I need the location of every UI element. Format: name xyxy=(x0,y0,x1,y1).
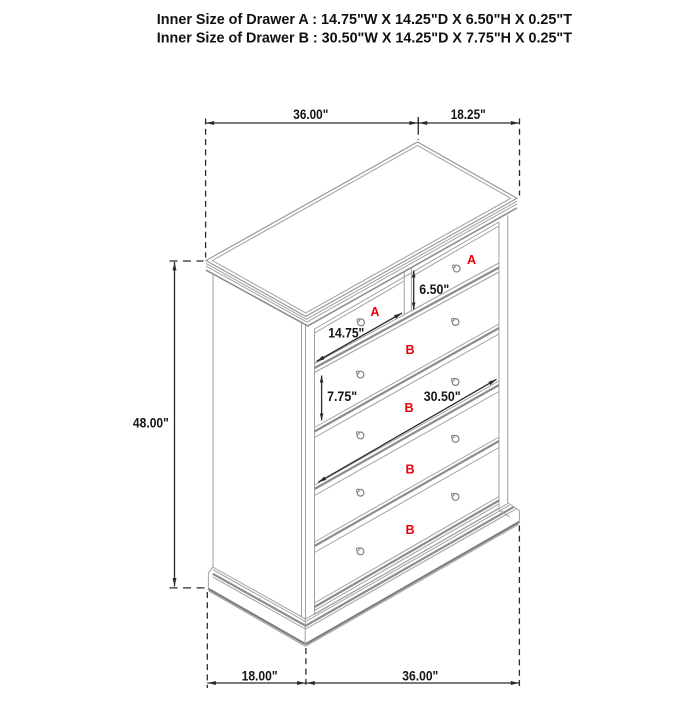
svg-text:A: A xyxy=(370,305,379,319)
svg-text:18.00": 18.00" xyxy=(242,668,278,683)
svg-text:48.00": 48.00" xyxy=(133,415,169,430)
svg-text:B: B xyxy=(405,343,414,357)
svg-text:B: B xyxy=(405,523,414,537)
svg-text:7.75": 7.75" xyxy=(327,389,357,404)
svg-text:36.00": 36.00" xyxy=(402,668,438,683)
svg-text:14.75": 14.75" xyxy=(328,326,364,341)
svg-text:B: B xyxy=(405,463,414,477)
svg-text:Inner Size of Drawer A : 14.75: Inner Size of Drawer A : 14.75"W X 14.25… xyxy=(157,12,572,28)
svg-text:6.50": 6.50" xyxy=(419,282,449,297)
svg-text:B: B xyxy=(404,401,413,415)
svg-text:Inner Size of Drawer B : 30.50: Inner Size of Drawer B : 30.50"W X 14.25… xyxy=(157,30,572,46)
svg-text:30.50": 30.50" xyxy=(424,389,461,404)
svg-text:A: A xyxy=(467,253,476,267)
svg-text:36.00": 36.00" xyxy=(293,107,328,122)
svg-text:18.25": 18.25" xyxy=(451,107,486,122)
